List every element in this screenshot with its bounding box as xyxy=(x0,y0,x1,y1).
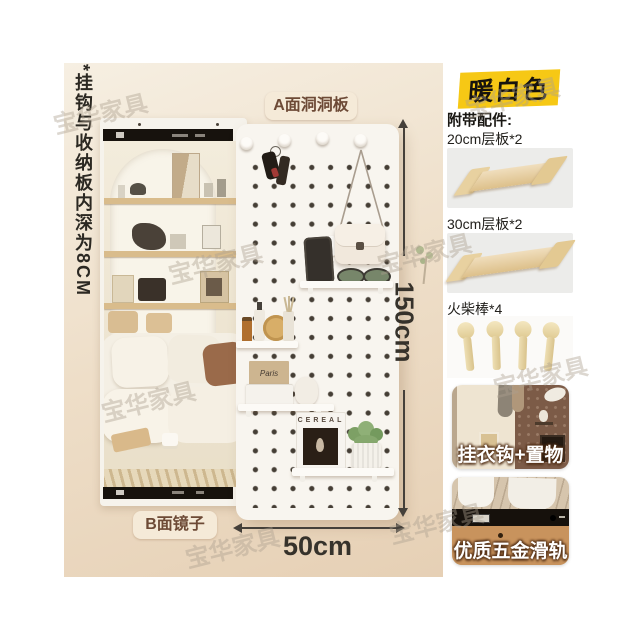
vase xyxy=(217,179,226,197)
coffee-cup xyxy=(162,433,178,446)
leaning-frame xyxy=(112,275,134,303)
cereal-cover-photo xyxy=(303,428,338,465)
arrow-up-icon xyxy=(398,119,408,128)
rail-hardware xyxy=(172,134,188,137)
white-box xyxy=(246,384,293,406)
shelf-bracket xyxy=(308,288,313,294)
chair xyxy=(146,313,172,333)
shelf-plank xyxy=(104,198,244,204)
shelf-bracket xyxy=(372,476,377,482)
wall-shelf xyxy=(300,281,393,288)
peg-stick xyxy=(463,337,475,372)
rail-hardware xyxy=(116,132,124,138)
pegboard-panel: Paris CEREAL xyxy=(236,124,399,520)
feature-card-label: 优质五金滑轨 xyxy=(452,536,569,563)
slat-bench xyxy=(104,469,244,487)
slide-rail-bottom xyxy=(103,487,233,499)
shelf-bracket xyxy=(378,288,383,294)
plant-pot xyxy=(352,443,381,468)
shelf-bracket xyxy=(246,411,251,417)
matchstick-peg xyxy=(456,321,478,372)
phone xyxy=(303,236,334,285)
cover-moon xyxy=(316,438,324,452)
shelf-bracket xyxy=(300,476,305,482)
width-dimension-label: 50cm xyxy=(283,531,352,562)
product-detail-image: *挂钩与收纳板内深为8CM xyxy=(0,0,640,640)
mirror-reflection xyxy=(104,141,244,487)
peg-stick xyxy=(491,336,500,370)
pump-top xyxy=(257,302,262,310)
peg xyxy=(278,134,291,147)
panel-edge xyxy=(507,477,556,510)
rail-hardware xyxy=(196,491,204,494)
cat-figurine xyxy=(295,377,318,405)
height-dimension-label: 150cm xyxy=(389,282,420,363)
reed-diffuser xyxy=(283,311,294,341)
shelf-plank xyxy=(104,303,244,309)
peg xyxy=(316,132,329,145)
bowl xyxy=(130,183,146,195)
height-dimension-line xyxy=(403,390,405,510)
handbag-clasp xyxy=(356,242,364,250)
label-front-pegboard: A面洞洞板 xyxy=(265,92,357,120)
chair xyxy=(108,311,138,333)
vase xyxy=(204,183,213,197)
bag-strap xyxy=(333,146,389,230)
feature-card-label: 挂衣钩+置物 xyxy=(452,440,569,467)
rail-knob xyxy=(550,515,556,521)
wall-shelf xyxy=(236,341,298,348)
rail-mark xyxy=(559,516,565,518)
wall-shelf xyxy=(292,468,394,476)
rail-hardware xyxy=(195,134,205,137)
vase xyxy=(118,185,125,198)
cereal-magazine: CEREAL xyxy=(296,412,346,471)
mini-shelf xyxy=(535,422,553,425)
rail-hardware xyxy=(116,490,124,495)
shelf-board-20cm xyxy=(458,151,563,205)
peg xyxy=(240,137,253,150)
accessory-photo-20cm-shelf xyxy=(447,148,573,208)
magazine: Paris xyxy=(249,361,289,386)
books xyxy=(170,234,186,249)
height-dimension-line xyxy=(403,126,405,256)
matchstick-peg xyxy=(486,321,505,371)
screw-dot xyxy=(216,123,219,126)
slide-rail-top xyxy=(103,129,233,141)
rail-hardware xyxy=(172,491,184,494)
cereal-title: CEREAL xyxy=(297,417,345,424)
vintage-radio xyxy=(138,278,166,301)
figurine xyxy=(539,410,548,422)
wall-shelf xyxy=(238,404,334,411)
accessory-label-20cm: 20cm层板*2 xyxy=(447,129,522,149)
wall-art xyxy=(172,153,200,199)
screw-dot xyxy=(138,123,141,126)
